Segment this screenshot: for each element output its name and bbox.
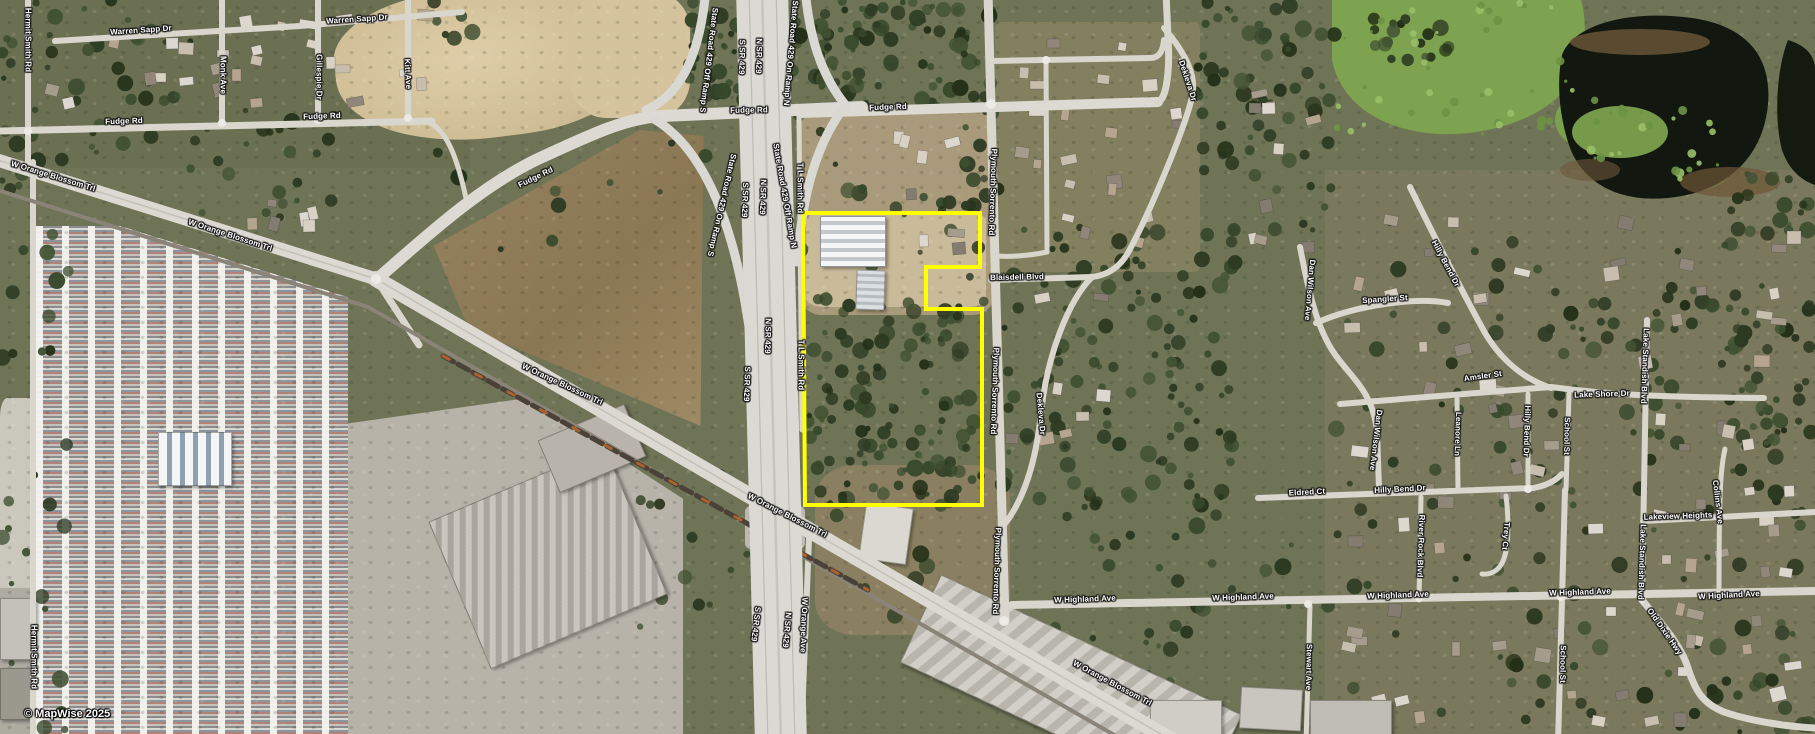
street-label: Leanore Ln xyxy=(1452,412,1462,456)
street-label: W Highland Ave xyxy=(1054,595,1116,606)
street-label: W Highland Ave xyxy=(1212,593,1274,604)
street-label: School St xyxy=(1557,645,1566,683)
street-label: Hilly Bend Dr xyxy=(1429,239,1461,289)
street-label: Eldred Ct xyxy=(1289,488,1326,499)
street-label: Lakeview Heights xyxy=(1643,511,1712,522)
street-label: Hermit Smith Rd xyxy=(23,8,32,72)
street-label: State Road 429 On Ramp S xyxy=(705,153,737,257)
street-label: Lake Standish Blvd xyxy=(1638,328,1649,404)
street-label: N SR 429 xyxy=(780,612,792,648)
street-label: Gillespie Dr xyxy=(314,54,323,100)
street-label: N SR 429 xyxy=(753,38,762,74)
street-label: W Highland Ave xyxy=(1698,590,1760,602)
street-label: Old Dixie Hwy xyxy=(1645,607,1684,657)
street-label: Hilly Bend Dr xyxy=(1521,405,1532,457)
street-label: W Orange Blossom Trl xyxy=(10,160,97,194)
street-label: Hilly Bend Dr xyxy=(1374,484,1426,495)
street-label: S SR 429 xyxy=(741,366,751,401)
street-label: School St xyxy=(1561,417,1570,455)
street-label: W Orange Blossom Trl xyxy=(1071,660,1153,709)
street-label: Amsler St xyxy=(1463,370,1502,384)
street-label: Stewart Ave xyxy=(1303,644,1313,690)
street-label: River Rock Blvd xyxy=(1415,514,1426,577)
street-label: T L Smith Rd xyxy=(795,163,804,213)
street-label: S SR 429 xyxy=(736,39,745,74)
map-copyright: © MapWise 2025 xyxy=(24,708,110,720)
street-label: Fudge Rd xyxy=(105,117,143,127)
aerial-map-viewport[interactable]: Warren Sapp DrWarren Sapp DrHermit Smith… xyxy=(0,0,1815,734)
street-label: S SR 429 xyxy=(739,182,749,217)
street-label: Fudge Rd xyxy=(303,112,341,122)
street-label: W Highland Ave xyxy=(1367,591,1429,602)
street-label: W Highland Ave xyxy=(1549,588,1611,599)
street-label: Fudge Rd xyxy=(730,106,768,115)
street-label: State Road 429 On Ramp N xyxy=(781,0,799,106)
street-label: Dan Wilson Ave xyxy=(1367,409,1383,471)
street-label: Warren Sapp Dr xyxy=(326,13,388,26)
street-label: Lake Standish Blvd xyxy=(1635,524,1646,600)
street-label: Fudge Rd xyxy=(869,103,907,113)
street-label: Blaisdell Blvd xyxy=(990,273,1044,283)
street-label: T L Smith Rd xyxy=(796,340,805,390)
street-label: Dan Wilson Ave xyxy=(1302,259,1316,321)
street-label: Kitt Ave xyxy=(402,59,412,90)
street-label: W Orange Blossom Trl xyxy=(746,492,828,540)
street-label: Dekleva Dr xyxy=(1176,59,1197,102)
street-label: Plymouth Sorrento Rd xyxy=(990,527,1002,614)
street-label: Plymouth Sorrento Rd xyxy=(988,347,1000,434)
street-label: Trey Ct xyxy=(1499,522,1510,550)
street-label: Warren Sapp Dr xyxy=(110,24,172,37)
street-label: Fudge Rd xyxy=(517,166,555,190)
street-label: Monk Ave xyxy=(218,56,227,94)
street-label: Lake Shore Dr xyxy=(1574,390,1630,401)
street-labels-layer: Warren Sapp DrWarren Sapp DrHermit Smith… xyxy=(0,0,1815,734)
street-label: N SR 429 xyxy=(757,179,767,215)
street-label: Plymouth Sorrento Rd xyxy=(986,148,998,235)
street-label: W Orange Blossom Trl xyxy=(520,362,603,407)
street-label: State Road 429 Off Ramp N xyxy=(770,143,797,249)
street-label: N SR 429 xyxy=(762,318,771,354)
street-label: State Road 429 Off Ramp S xyxy=(697,7,719,113)
street-label: Spangler St xyxy=(1362,294,1408,306)
street-label: Hermit Smith Rd xyxy=(29,625,38,689)
street-label: S SR 429 xyxy=(748,606,761,642)
street-label: Dekleva Dr xyxy=(1034,393,1046,436)
street-label: W Orange Ave xyxy=(798,597,809,653)
street-label: W Orange Blossom Trl xyxy=(187,218,273,253)
